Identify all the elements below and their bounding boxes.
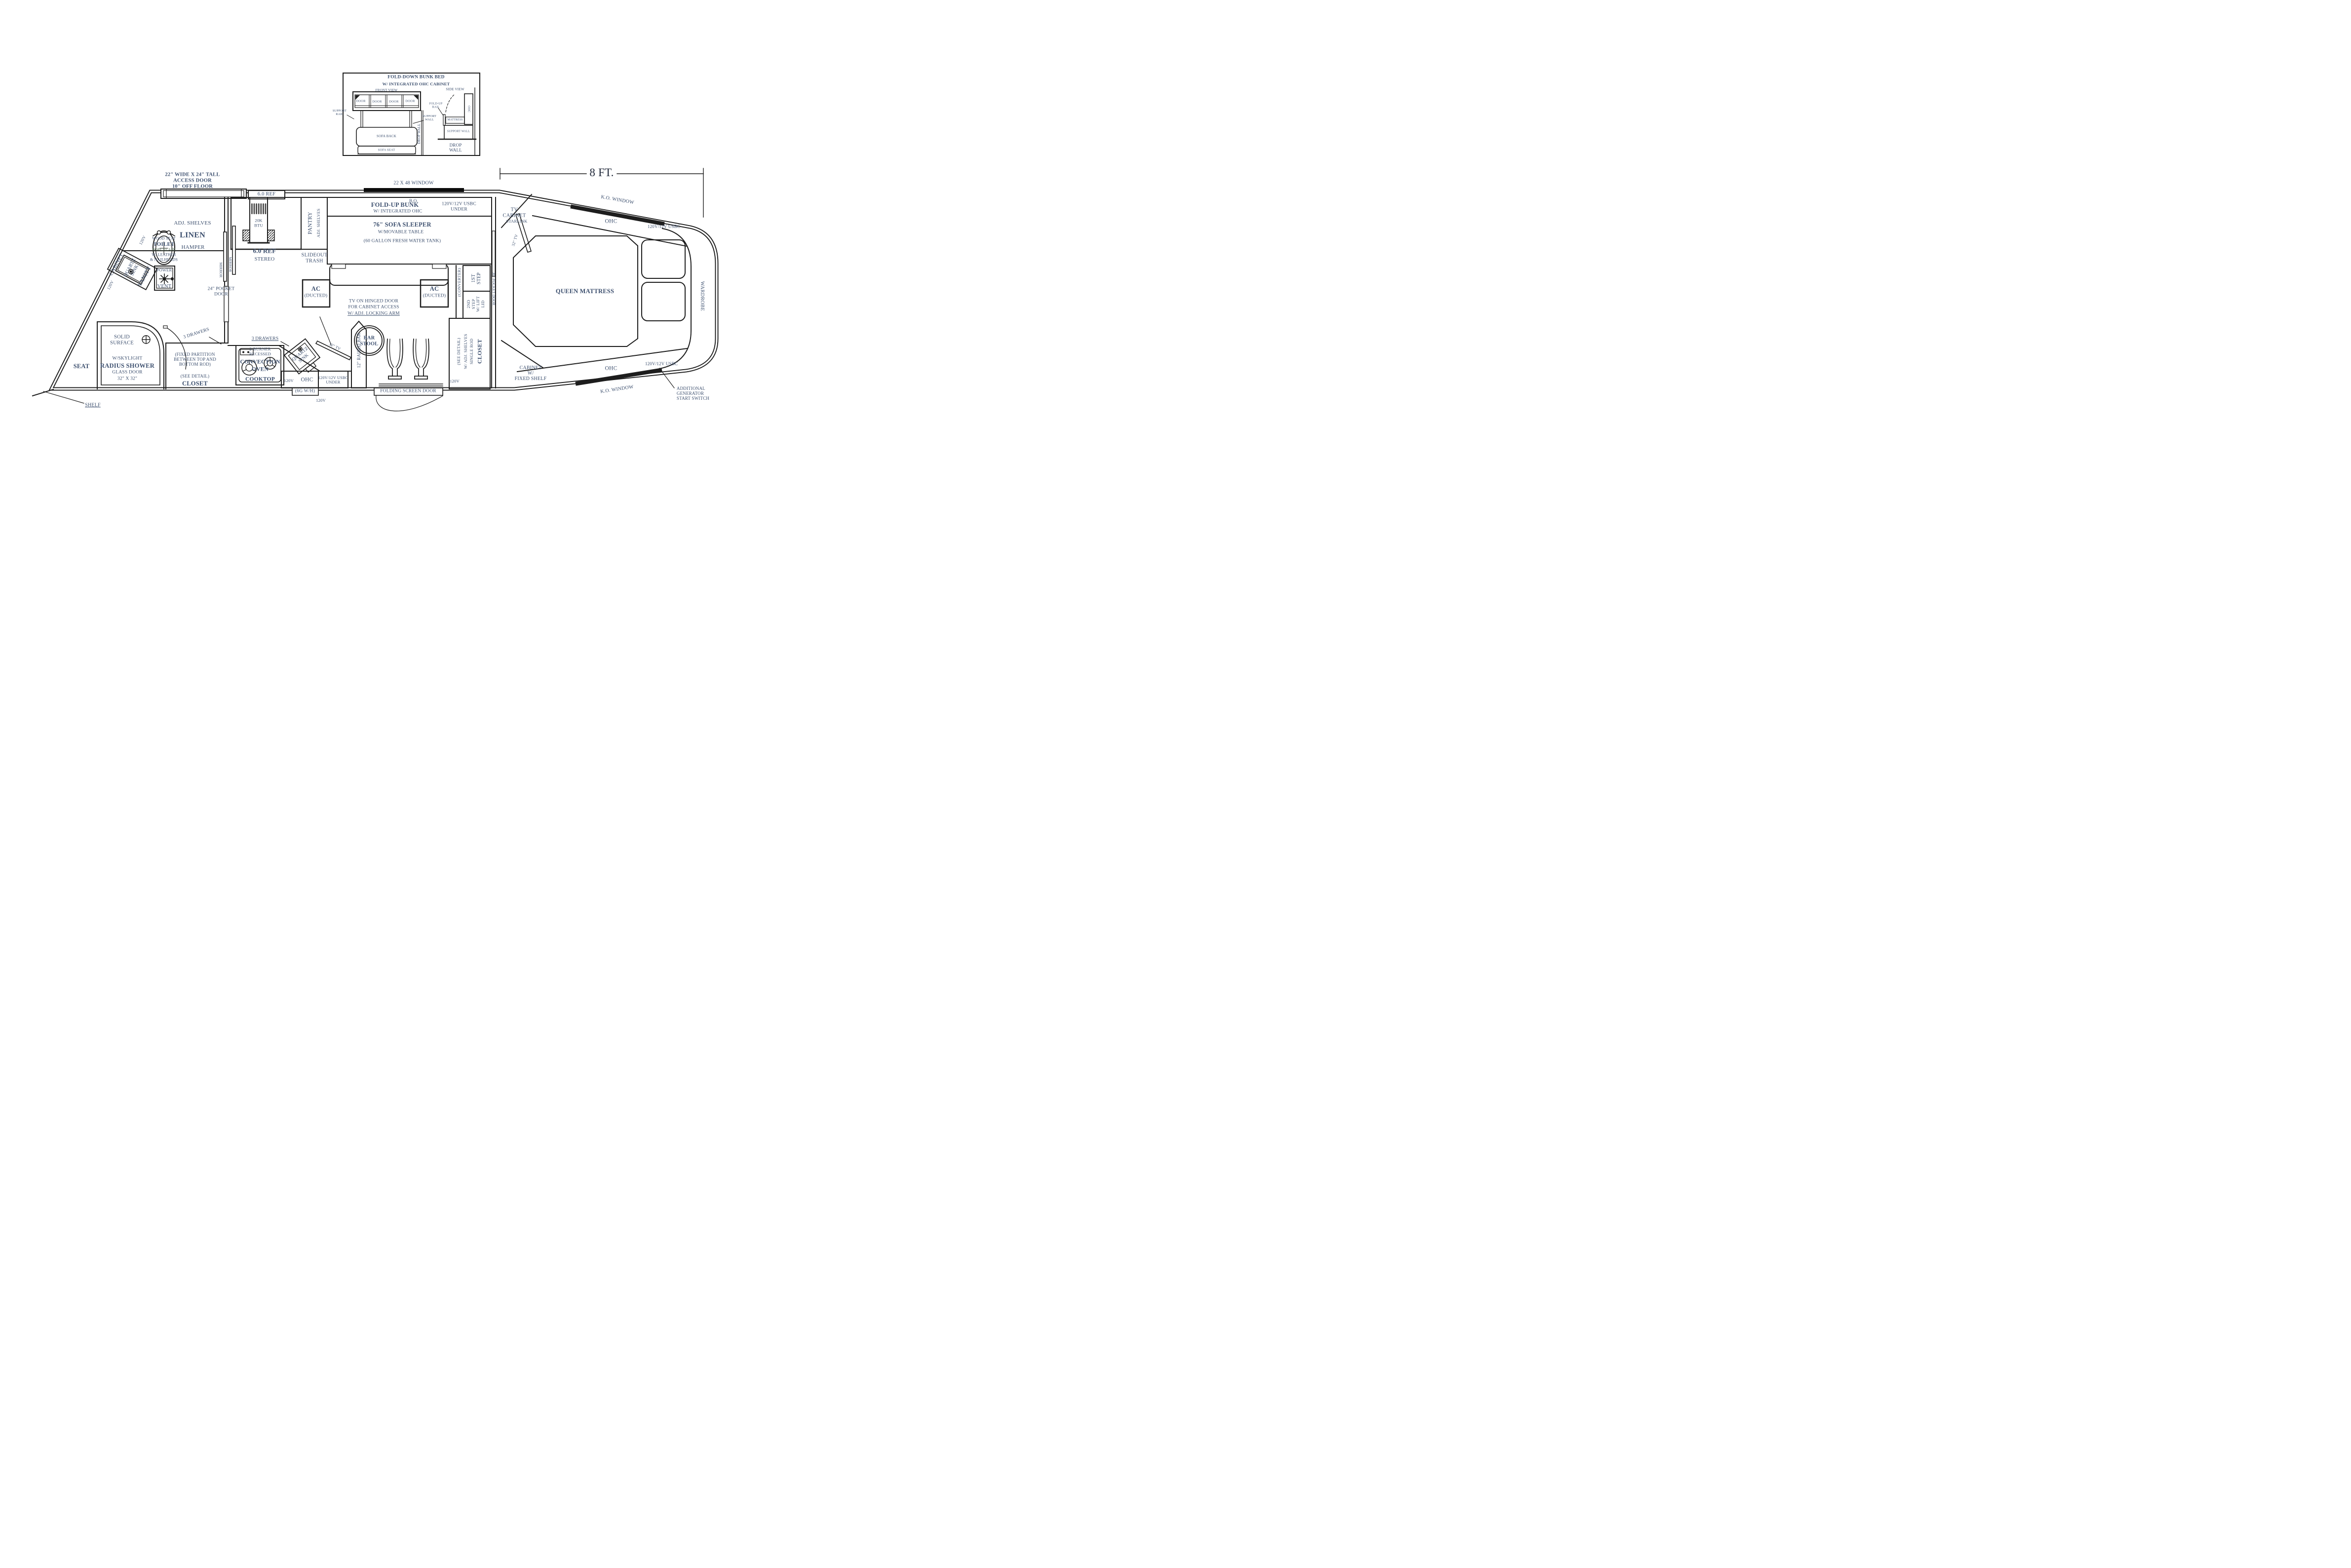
shower-surface-label: SOLID SURFACE — [110, 334, 134, 346]
mirrors — [224, 226, 235, 281]
queen-mattress-label: QUEEN MATTRESS — [556, 288, 614, 295]
movable-table-label: W/MOVABLE TABLE — [378, 230, 424, 235]
tv-note-line2: FOR CABINET ACCESS — [348, 305, 399, 310]
fixed-partition-label: (FIXED PARTITION BETWEEN TOP AND BOTTOM … — [174, 352, 216, 367]
inset-drop-wall-label: DROP WALL — [418, 123, 422, 144]
shower-size-label: 32" X 32" — [117, 377, 137, 382]
inset-door-label: DOOR — [372, 100, 382, 103]
toilet-label-5: & NAILHEADS — [150, 258, 178, 263]
toilet-label-4: W/ LEATHER — [152, 253, 176, 258]
power-vent-label-2: VENT — [157, 284, 172, 290]
generator-switch-label: ADDITIONAL GENERATOR START SWITCH — [677, 386, 709, 401]
burner-label-2: RECESSED — [249, 352, 271, 357]
pantry-label: PANTRY — [308, 212, 314, 234]
furnace-btu-label: 20K BTU — [254, 218, 263, 228]
floorplan-page: FOLD-DOWN BUNK BED W/ INTEGRATED OHC CAB… — [0, 0, 763, 509]
pillow-top — [642, 240, 685, 278]
folding-screen-door-label: FOLDING SCREEN DOOR — [380, 389, 436, 394]
closet-label: CLOSET — [476, 339, 483, 364]
kitchen-ohc-label: OHC — [301, 377, 313, 383]
outlet-120v-label: 120V — [450, 379, 460, 384]
window-22x48-label: 22 X 48 WINDOW — [393, 180, 433, 186]
bar-stool-label: BAR STOOL — [360, 335, 379, 347]
slideout-trash-label: SLIDEOUT TRASH — [302, 252, 328, 264]
plan-linework — [0, 0, 763, 509]
fresh-water-tank-label: (60 GALLON FRESH WATER TANK) — [364, 239, 441, 244]
toilet-label-2: TOILET — [153, 241, 174, 247]
wardrobe-label: WARDROBE — [699, 281, 705, 311]
outlet-120v-label: 120V — [284, 379, 294, 383]
usbc-label: 120V/12V USBC — [645, 361, 678, 366]
access-door-label: 22" WIDE X 24" TALL ACCESS DOOR 10" OFF … — [165, 172, 220, 189]
usbc-under-label: 120V/12V USBC UNDER — [318, 376, 348, 384]
inset-ohc-label: OHC — [467, 106, 470, 113]
window-22x48 — [364, 188, 464, 192]
inset-front-view-label: FRONT VIEW — [376, 89, 398, 93]
inset-title: FOLD-DOWN BUNK BED — [387, 75, 445, 80]
tv-note-line1: TV ON HINGED DOOR — [349, 299, 398, 305]
shower — [97, 322, 186, 389]
mirror-label: MIRROR — [219, 263, 223, 278]
ac-label: AC — [311, 285, 320, 292]
ac-ducted-label: (DUCTED) — [423, 294, 446, 299]
furnace-coils-icon — [251, 203, 266, 214]
inset-fold-up-rail-label: FOLD-UP RAIL — [429, 102, 443, 109]
glass-door-label: GLASS DOOR — [112, 370, 142, 376]
drawers-label: 3 DRAWERS — [252, 337, 279, 342]
step1-label: 1ST STEP — [471, 272, 482, 284]
ko-window-bottom — [578, 370, 660, 383]
pillow-bottom — [642, 282, 685, 321]
toilet-label-1: WOOD SEAT — [152, 237, 176, 241]
inset-side-view-label: SIDE VIEW — [446, 88, 464, 92]
stereo-label: STEREO — [255, 257, 275, 263]
convection-label-2: OVEN — [252, 367, 269, 373]
fridge-label: 6.0 REF — [253, 248, 276, 255]
dimension-8ft: 8 FT. — [589, 166, 614, 179]
nose-shelf — [33, 389, 84, 403]
see-detail-label: (SEE DETAIL) — [181, 374, 209, 379]
usbc-under-label: 120V/12V USBC UNDER — [442, 201, 476, 212]
seat-label: SEAT — [74, 363, 90, 370]
inset-subtitle: W/ INTEGRATED OHC CABINET — [383, 82, 450, 87]
power-vent-label-1: POWER — [157, 268, 172, 273]
shower-head-icon — [142, 336, 150, 344]
tv-cabinet-label: TV CABINET — [503, 207, 526, 219]
fridge-top-label: 6.0 REF — [258, 191, 275, 197]
bedroom-ohc-top-label: OHC — [605, 219, 617, 225]
sofa-sleeper-label: 76" SOFA SLEEPER — [373, 221, 431, 228]
water-heater-label: (6G W/H) — [295, 389, 315, 394]
inset-sofa-seat-label: SOFA SEAT — [378, 148, 395, 152]
radius-shower-label: RADIUS SHOWER — [100, 362, 154, 369]
inset-door-label: DOOR — [389, 100, 398, 103]
tv-note-line3: W/ ADJ. LOCKING ARM — [347, 311, 400, 317]
converter-label: (CONVERTER) — [457, 268, 462, 297]
inset-support-wall-label: SUPPORT WALL — [423, 115, 436, 122]
ko-window-top — [573, 207, 662, 224]
steps-closet — [449, 266, 490, 389]
fridge-furnace — [231, 197, 301, 249]
ac-ducted-label: (DUCTED) — [305, 294, 327, 299]
closet-detail-label: (SEE DETAIL) — [457, 338, 462, 365]
inset-sofa-back-label: SOFA BACK — [377, 135, 396, 139]
inset-support-wall2-label: SUPPORT WALL — [447, 130, 470, 134]
linen-shelves-label: ADJ. SHELVES — [174, 220, 211, 226]
usbc-label: 120V/12V USBC — [648, 224, 680, 229]
toilet-label-3: PORCELAIN — [153, 248, 176, 253]
inset-drop-wall2-label: DROP WALL — [449, 143, 462, 153]
inset-mattress-label: MATTRESS — [447, 118, 462, 121]
bedroom-ohc-bottom-label: OHC — [605, 366, 617, 372]
fold-up-bunk-label: FOLD-UP BUNK — [371, 201, 419, 208]
bar-stool-icons — [379, 339, 443, 386]
cabinet-fixed-shelf-label: CABINET W/ FIXED SHELF — [515, 365, 547, 382]
shelf-label: SHELF — [85, 402, 101, 408]
inset-door-label: DOOR — [356, 99, 365, 103]
shower-skylight-label: W/SKYLIGHT — [112, 356, 142, 362]
pantry-shelves-label: ADJ. SHELVES — [316, 209, 321, 238]
fold-up-bunk-sub-label: W/ INTEGRATED OHC — [374, 209, 423, 215]
kitchen-closet-label: CLOSET — [182, 380, 208, 387]
step2-label: 2ND STEP W/ LIFT LID — [466, 296, 485, 312]
inset-door-label: DOOR — [405, 99, 415, 103]
ac-label: AC — [430, 285, 439, 292]
pocket-door-30-label: 30" POCKET DOOR — [492, 272, 496, 306]
pantry-box — [301, 197, 327, 249]
cooktop-label: COOKTOP — [245, 377, 275, 383]
mirror-label: MIRROR — [228, 257, 232, 272]
hamper-label: HAMPER — [181, 244, 204, 250]
pocket-door-24-label: 24" POCKET DOOR — [208, 286, 235, 297]
closet-rod-label: SINGLE ROD — [469, 339, 474, 364]
linen-label: LINEN — [180, 231, 205, 240]
convection-label-1: CONVECTION — [240, 359, 280, 366]
inset-support-rail-label: SUPPORT RAIL — [333, 110, 347, 116]
closet-shelves-label: W/ ADJ. SHELVES — [463, 334, 468, 369]
starlink-label: STARLINK — [506, 219, 528, 224]
outlet-120v-label: 120V — [316, 398, 326, 403]
